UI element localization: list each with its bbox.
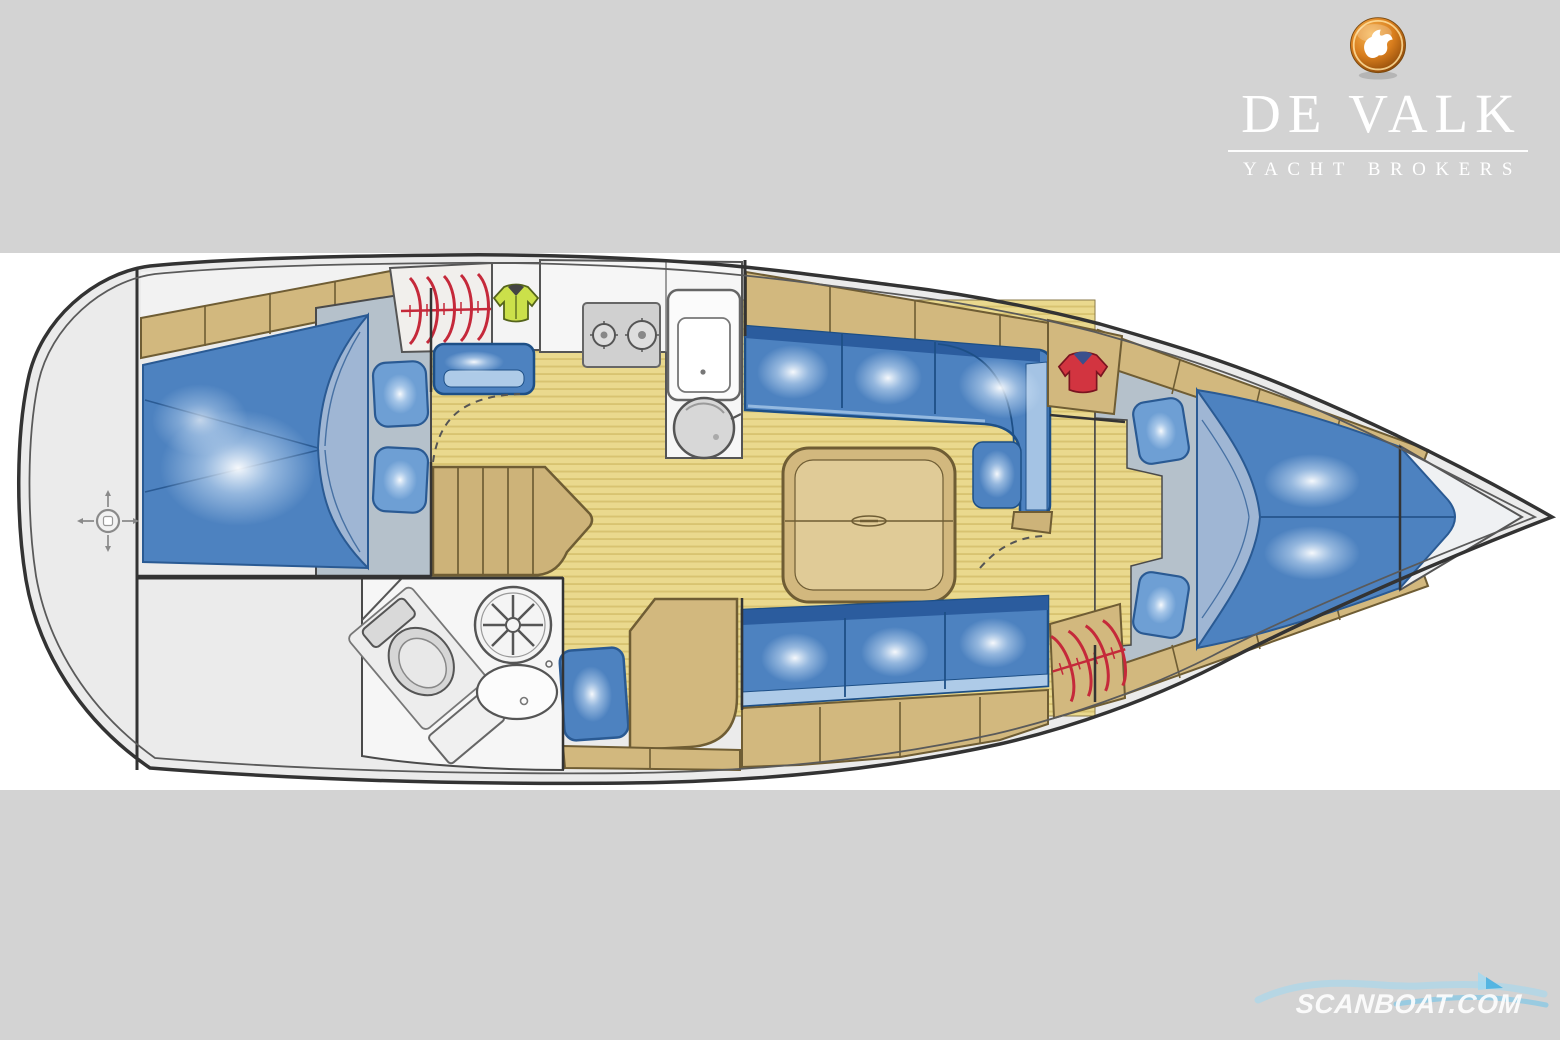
aft-cabin: [141, 263, 431, 576]
brand-title: DE VALK: [1234, 86, 1522, 141]
chart-table: [630, 599, 737, 750]
washbasin-icon: [477, 665, 557, 719]
nav-seat: [559, 647, 629, 741]
sink-icon: [668, 290, 740, 400]
listing-image: DE VALK YACHT BROKERS SCANBOAT.COM: [0, 0, 1560, 1040]
aft-hanging-locker: [390, 263, 492, 352]
wet-locker: [492, 263, 540, 350]
saloon-table: [783, 448, 955, 602]
falcon-badge-icon: [1345, 12, 1411, 82]
saloon-settee-starboard: [742, 596, 1048, 706]
brand-divider: [1228, 150, 1528, 152]
scanboat-watermark: SCANBOAT.COM: [1246, 960, 1556, 1032]
devalk-logo: DE VALK YACHT BROKERS: [1218, 12, 1538, 181]
forward-wardrobe: [1048, 320, 1122, 414]
watermark-text: SCANBOAT.COM: [1295, 989, 1523, 1020]
head-compartment: [345, 578, 563, 770]
companionway-landing: [434, 344, 534, 394]
stove-two-burners-icon: [583, 303, 660, 367]
brand-tagline: YACHT BROKERS: [1234, 159, 1522, 181]
forward-cabin: [1043, 320, 1522, 718]
forward-v-berth: [1197, 390, 1455, 648]
